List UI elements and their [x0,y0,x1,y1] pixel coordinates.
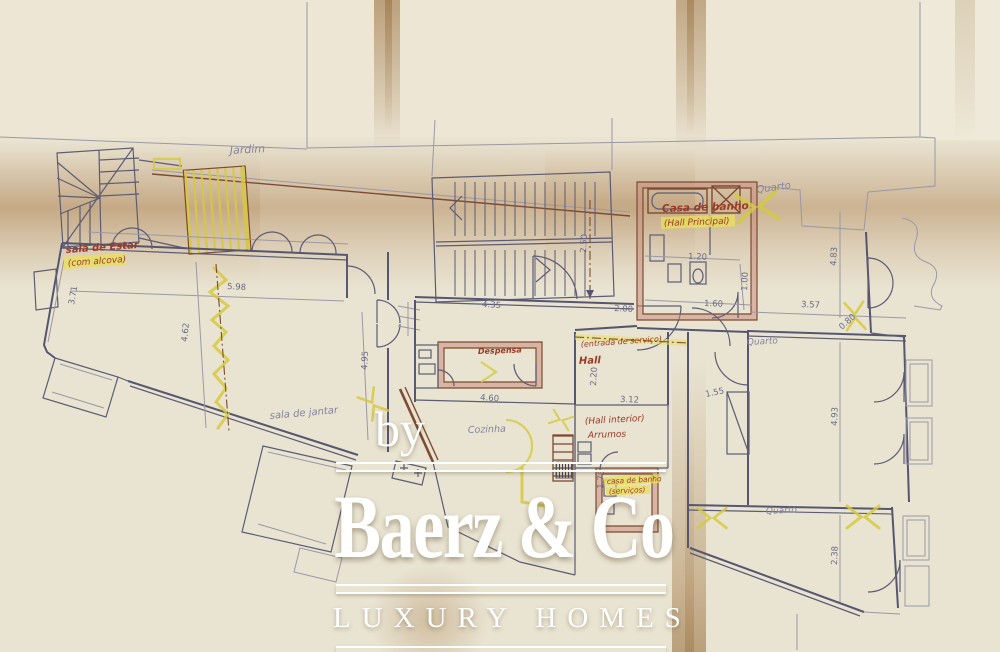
room-label-sala-de-jantar: sala de jantar [269,405,339,422]
window-sill [905,566,929,606]
dimension-label: 4.62 [180,322,192,342]
kitchen-annex [242,446,352,552]
dimension-label: 3.12 [620,395,639,406]
dimension-label: 4.60 [480,393,500,404]
door-arc [715,352,748,385]
room-label-cozinha: Cozinha [468,424,506,436]
radiator [556,462,572,478]
door-arc [377,300,400,323]
dimension-label: 3.57 [801,300,820,311]
door-arc [874,434,904,464]
room-label-hall: Hall [579,355,602,367]
door-arc [600,452,618,470]
dimension-label: 2.38 [830,546,841,565]
dimension-label: 2.20 [589,367,600,386]
room-label-jardim: Jardim [227,142,265,157]
dimension-label: 5.98 [227,282,246,293]
room-label-arrumos: Arrumos [587,430,627,441]
door-arc [377,324,400,347]
plan-drawing: 5.98 4.62 3.71 4.95 4.35 2.50 2.00 3.12 … [0,0,1000,652]
dimension-label: 2.50 [579,234,590,253]
floor-plan-photo: 5.98 4.62 3.71 4.95 4.35 2.50 2.00 3.12 … [0,0,1000,652]
pantry-kitchen [242,342,575,582]
dimension-label: 1.00 [740,272,751,291]
dimension-label: 1.20 [688,252,707,263]
dimension-label: 4.93 [830,407,841,426]
dimension-label: 3.71 [67,285,80,305]
annex-block [43,358,118,417]
dimension-label: 4.35 [482,300,501,311]
room-label-quarto-se: Quarto [766,505,798,517]
room-label-hall-interior: (Hall interior) [585,414,645,427]
room-label-despensa: Despensa [478,345,522,356]
dimension-label: 1.60 [704,299,723,310]
dimension-label: 4.95 [360,351,371,370]
dimension-label: 1.55 [705,386,726,400]
room-label-quarto-e: Quarto [747,336,779,348]
dimension-label: 4.83 [829,247,840,266]
dimension-label: 2.00 [614,304,633,315]
room-label-casa-de-banho-servicos-sub: (serviços) [609,485,646,496]
door-arc [874,372,904,402]
